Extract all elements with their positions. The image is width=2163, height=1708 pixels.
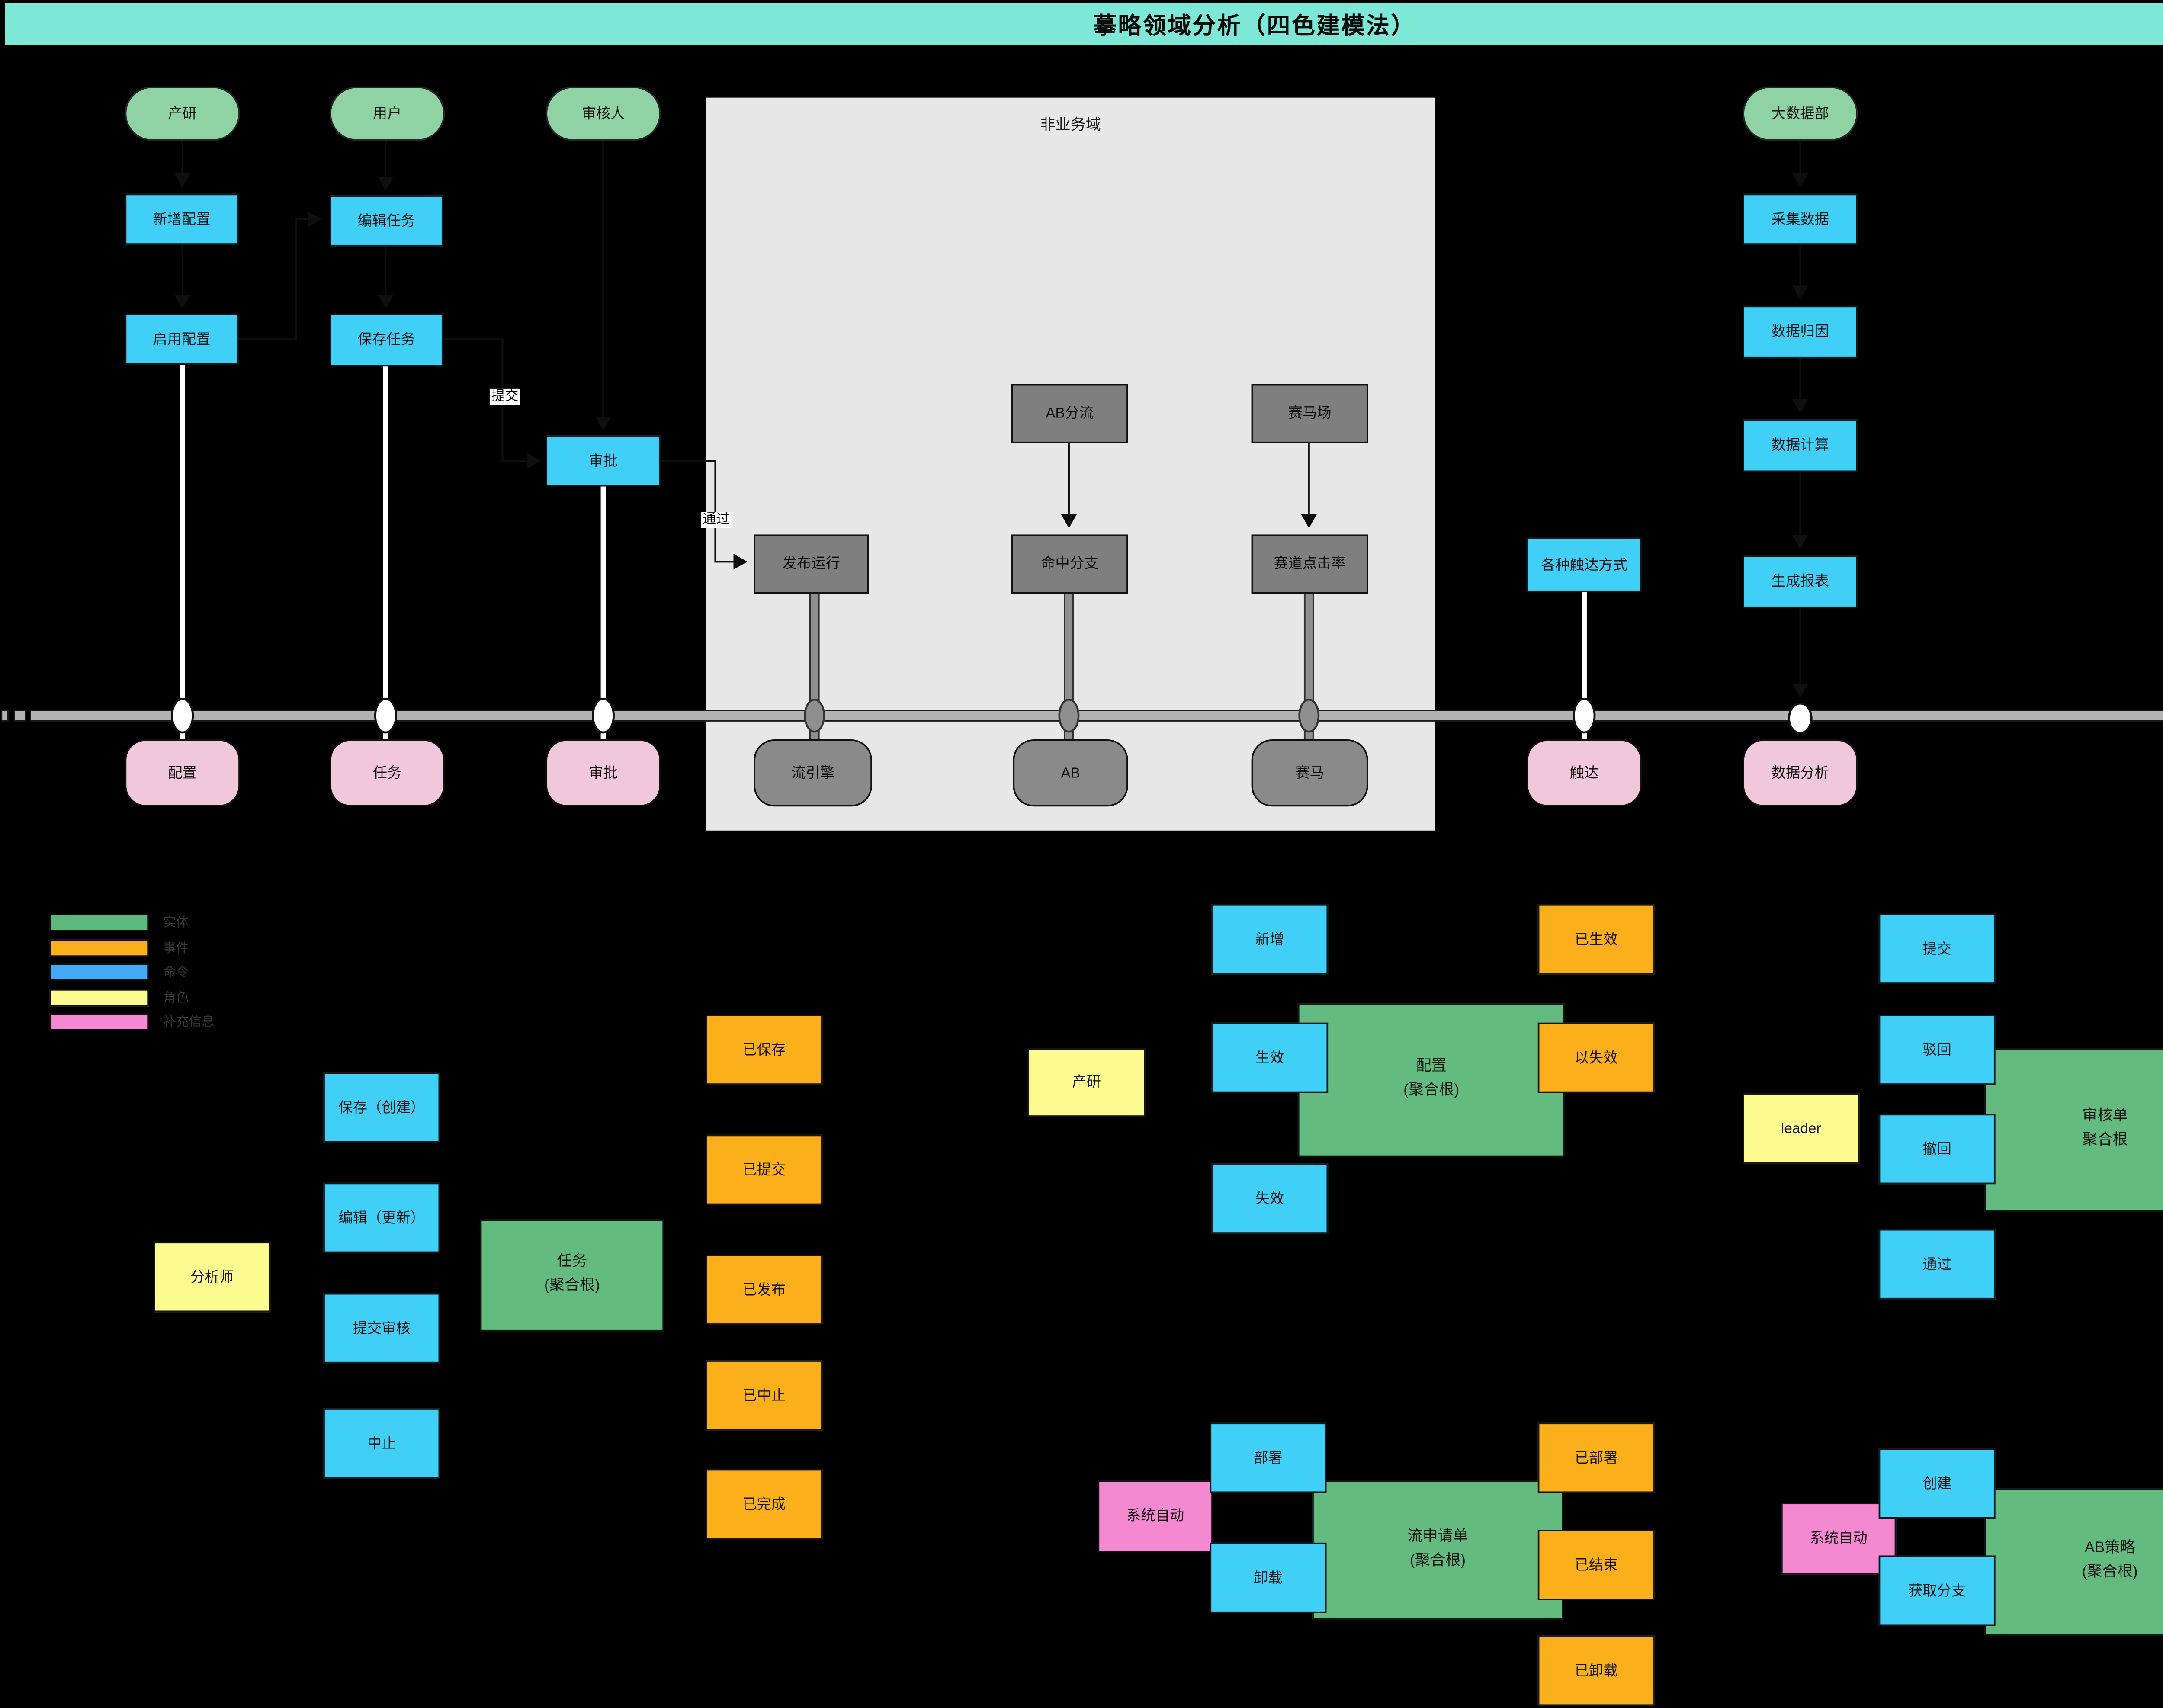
command-save-task[interactable]: 保存任务 xyxy=(330,314,443,366)
system-publish-run[interactable]: 发布运行 xyxy=(754,534,869,594)
event-uninstalled[interactable]: 已卸载 xyxy=(1538,1635,1655,1706)
legend-item-command: 命令 xyxy=(50,963,215,981)
command-take-effect-label: 生效 xyxy=(1255,1048,1284,1068)
command-add-config[interactable]: 新增配置 xyxy=(125,194,239,245)
phase-data-analysis[interactable]: 数据分析 xyxy=(1743,739,1858,806)
command-deploy-label: 部署 xyxy=(1254,1448,1283,1468)
command-edit-update[interactable]: 编辑（更新） xyxy=(323,1183,440,1253)
role-product-rd-label: 产研 xyxy=(1072,1072,1101,1093)
legend-label-role: 角色 xyxy=(163,989,189,1006)
legend-label-event: 事件 xyxy=(163,939,189,957)
command-generate-report-label: 生成报表 xyxy=(1771,571,1829,592)
actor-bigdata-dept[interactable]: 大数据部 xyxy=(1743,87,1858,141)
event-expired[interactable]: 以失效 xyxy=(1538,1023,1655,1093)
legend: 实体事件命令角色补充信息 xyxy=(50,914,215,1038)
legend-item-extra: 补充信息 xyxy=(50,1014,215,1031)
command-submit-review-label: 提交审核 xyxy=(353,1318,411,1339)
command-uninstall-label: 卸载 xyxy=(1254,1568,1283,1588)
legend-swatch-entity xyxy=(50,914,149,931)
actor-user-label: 用户 xyxy=(373,103,402,124)
phase-reach[interactable]: 触达 xyxy=(1527,739,1642,806)
event-finished[interactable]: 已结束 xyxy=(1538,1530,1655,1600)
command-approve[interactable]: 审批 xyxy=(546,435,661,486)
command-abort-label: 中止 xyxy=(367,1433,396,1454)
event-published-label: 已发布 xyxy=(742,1280,786,1300)
command-edit-task[interactable]: 编辑任务 xyxy=(330,195,443,246)
legend-swatch-extra xyxy=(50,1014,149,1031)
command-add[interactable]: 新增 xyxy=(1211,904,1328,975)
actor-reviewer[interactable]: 审核人 xyxy=(546,87,661,141)
phase-task[interactable]: 任务 xyxy=(330,739,445,806)
phase-flow-engine-label: 流引擎 xyxy=(791,763,834,783)
actor-product-rd-label: 产研 xyxy=(168,103,197,124)
auto-system-flow-label: 系统自动 xyxy=(1126,1506,1184,1527)
aggregate-task-label: 任务 (聚合根) xyxy=(544,1252,600,1299)
phase-ab-label: AB xyxy=(1061,763,1080,783)
command-reject-label: 驳回 xyxy=(1922,1040,1951,1060)
legend-swatch-command xyxy=(50,963,149,981)
event-aborted-label: 已中止 xyxy=(742,1385,786,1406)
event-effective[interactable]: 已生效 xyxy=(1538,904,1655,975)
system-track-ctr[interactable]: 赛道点击率 xyxy=(1252,534,1368,594)
phase-reach-label: 触达 xyxy=(1570,763,1599,783)
command-expire[interactable]: 失效 xyxy=(1211,1163,1328,1234)
event-saved-label: 已保存 xyxy=(742,1040,786,1060)
command-submit-label: 提交 xyxy=(1922,939,1951,959)
event-effective-label: 已生效 xyxy=(1575,929,1618,950)
phase-flow-engine[interactable]: 流引擎 xyxy=(754,739,872,806)
command-save-create[interactable]: 保存（创建） xyxy=(323,1072,440,1143)
event-deployed-label: 已部署 xyxy=(1575,1448,1618,1468)
aggregate-config-label: 配置 (聚合根) xyxy=(1403,1056,1459,1104)
role-analyst[interactable]: 分析师 xyxy=(154,1242,270,1312)
system-track-ctr-label: 赛道点击率 xyxy=(1274,554,1346,575)
command-pass-label: 通过 xyxy=(1922,1254,1951,1275)
command-get-branch-label: 获取分支 xyxy=(1908,1581,1966,1601)
command-data-attribution[interactable]: 数据归因 xyxy=(1743,306,1858,359)
edge-label-submit: 提交 xyxy=(490,389,520,405)
aggregate-review-order-label: 审核单 聚合根 xyxy=(2082,1106,2128,1153)
phase-racing[interactable]: 赛马 xyxy=(1252,739,1368,806)
actor-bigdata-dept-label: 大数据部 xyxy=(1771,103,1829,124)
command-deploy[interactable]: 部署 xyxy=(1210,1422,1326,1493)
aggregate-config[interactable]: 配置 (聚合根) xyxy=(1298,1003,1565,1157)
aggregate-ab-strategy-label: AB策略 (聚合根) xyxy=(2082,1538,2138,1586)
command-add-config-label: 新增配置 xyxy=(153,209,210,229)
event-deployed[interactable]: 已部署 xyxy=(1538,1422,1655,1493)
command-submit[interactable]: 提交 xyxy=(1879,914,1996,984)
command-generate-report[interactable]: 生成报表 xyxy=(1743,555,1858,608)
command-approve-label: 审批 xyxy=(589,451,618,471)
command-uninstall[interactable]: 卸载 xyxy=(1210,1543,1326,1613)
phase-approval-label: 审批 xyxy=(589,763,618,783)
system-hit-branch[interactable]: 命中分支 xyxy=(1011,534,1128,594)
command-reject[interactable]: 驳回 xyxy=(1879,1015,1996,1085)
legend-item-entity: 实体 xyxy=(50,914,215,931)
phase-config-label: 配置 xyxy=(168,763,197,783)
diagram-canvas: 摹略领域分析（四色建模法） 非业务域 xyxy=(0,0,2163,1708)
phase-task-label: 任务 xyxy=(373,763,402,783)
aggregate-flow-request-label: 流申请单 (聚合根) xyxy=(1407,1526,1468,1573)
system-racecourse-label: 赛马场 xyxy=(1288,404,1332,424)
system-publish-run-label: 发布运行 xyxy=(783,554,840,575)
role-product-rd[interactable]: 产研 xyxy=(1027,1048,1146,1117)
system-ab-split-label: AB分流 xyxy=(1046,404,1094,424)
aggregate-task[interactable]: 任务 (聚合根) xyxy=(480,1220,664,1332)
legend-swatch-event xyxy=(50,939,149,957)
command-edit-task-label: 编辑任务 xyxy=(358,211,415,231)
command-save-task-label: 保存任务 xyxy=(358,330,415,350)
system-hit-branch-label: 命中分支 xyxy=(1041,554,1098,575)
legend-item-event: 事件 xyxy=(50,939,215,957)
auto-system-ab-label: 系统自动 xyxy=(1810,1528,1868,1549)
role-leader-label: leader xyxy=(1781,1118,1821,1139)
event-aborted[interactable]: 已中止 xyxy=(706,1360,822,1431)
event-finished-label: 已结束 xyxy=(1575,1555,1618,1575)
legend-label-command: 命令 xyxy=(163,963,189,981)
system-ab-split[interactable]: AB分流 xyxy=(1011,384,1128,443)
command-withdraw[interactable]: 撤回 xyxy=(1879,1114,1996,1185)
command-data-compute[interactable]: 数据计算 xyxy=(1743,419,1858,472)
command-pass[interactable]: 通过 xyxy=(1879,1229,1996,1300)
auto-system-flow[interactable]: 系统自动 xyxy=(1098,1480,1213,1552)
command-abort[interactable]: 中止 xyxy=(323,1408,440,1479)
event-uninstalled-label: 已卸载 xyxy=(1575,1660,1618,1681)
actor-user[interactable]: 用户 xyxy=(330,87,445,141)
event-submitted-task-label: 已提交 xyxy=(742,1160,786,1180)
phase-approval[interactable]: 审批 xyxy=(546,739,661,806)
legend-item-role: 角色 xyxy=(50,989,215,1006)
phase-data-analysis-label: 数据分析 xyxy=(1771,763,1829,783)
legend-swatch-role xyxy=(50,989,149,1006)
command-edit-update-label: 编辑（更新） xyxy=(338,1208,425,1228)
command-take-effect[interactable]: 生效 xyxy=(1211,1023,1328,1093)
command-get-branch[interactable]: 获取分支 xyxy=(1879,1555,1996,1626)
command-create-label: 创建 xyxy=(1922,1474,1951,1494)
command-reach-methods[interactable]: 各种触达方式 xyxy=(1527,538,1642,592)
event-published[interactable]: 已发布 xyxy=(706,1255,822,1325)
command-add-label: 新增 xyxy=(1255,929,1284,950)
event-expired-label: 以失效 xyxy=(1575,1048,1618,1068)
command-save-create-label: 保存（创建） xyxy=(338,1097,425,1117)
event-submitted-task[interactable]: 已提交 xyxy=(706,1135,822,1205)
phase-racing-label: 赛马 xyxy=(1295,763,1324,783)
legend-label-extra: 补充信息 xyxy=(163,1014,214,1031)
phase-config[interactable]: 配置 xyxy=(125,739,240,806)
command-collect-data-label: 采集数据 xyxy=(1771,209,1829,229)
role-leader[interactable]: leader xyxy=(1743,1093,1859,1163)
command-data-attribution-label: 数据归因 xyxy=(1771,322,1829,342)
node-layer: 产研用户审核人大数据部新增配置启用配置编辑任务保存任务审批各种触达方式采集数据数… xyxy=(0,0,2163,1708)
role-analyst-label: 分析师 xyxy=(190,1267,234,1287)
event-completed-label: 已完成 xyxy=(742,1494,786,1515)
aggregate-review-order[interactable]: 审核单 聚合根 xyxy=(1984,1048,2163,1211)
command-expire-label: 失效 xyxy=(1255,1188,1284,1209)
actor-product-rd[interactable]: 产研 xyxy=(125,87,240,141)
command-collect-data[interactable]: 采集数据 xyxy=(1743,194,1858,245)
command-submit-review[interactable]: 提交审核 xyxy=(323,1293,440,1364)
command-create[interactable]: 创建 xyxy=(1879,1448,1996,1519)
command-withdraw-label: 撤回 xyxy=(1922,1139,1951,1159)
command-reach-methods-label: 各种触达方式 xyxy=(1541,555,1627,575)
aggregate-flow-request[interactable]: 流申请单 (聚合根) xyxy=(1312,1480,1563,1620)
event-completed[interactable]: 已完成 xyxy=(706,1469,822,1540)
event-saved[interactable]: 已保存 xyxy=(706,1015,822,1085)
command-enable-config[interactable]: 启用配置 xyxy=(125,314,239,365)
aggregate-ab-strategy[interactable]: AB策略 (聚合根) xyxy=(1984,1488,2163,1635)
system-racecourse[interactable]: 赛马场 xyxy=(1252,384,1368,443)
legend-label-entity: 实体 xyxy=(163,914,189,931)
phase-ab[interactable]: AB xyxy=(1013,739,1128,806)
command-data-compute-label: 数据计算 xyxy=(1771,436,1829,456)
actor-reviewer-label: 审核人 xyxy=(582,103,625,124)
edge-label-pass: 通过 xyxy=(701,512,731,528)
command-enable-config-label: 启用配置 xyxy=(153,329,210,350)
